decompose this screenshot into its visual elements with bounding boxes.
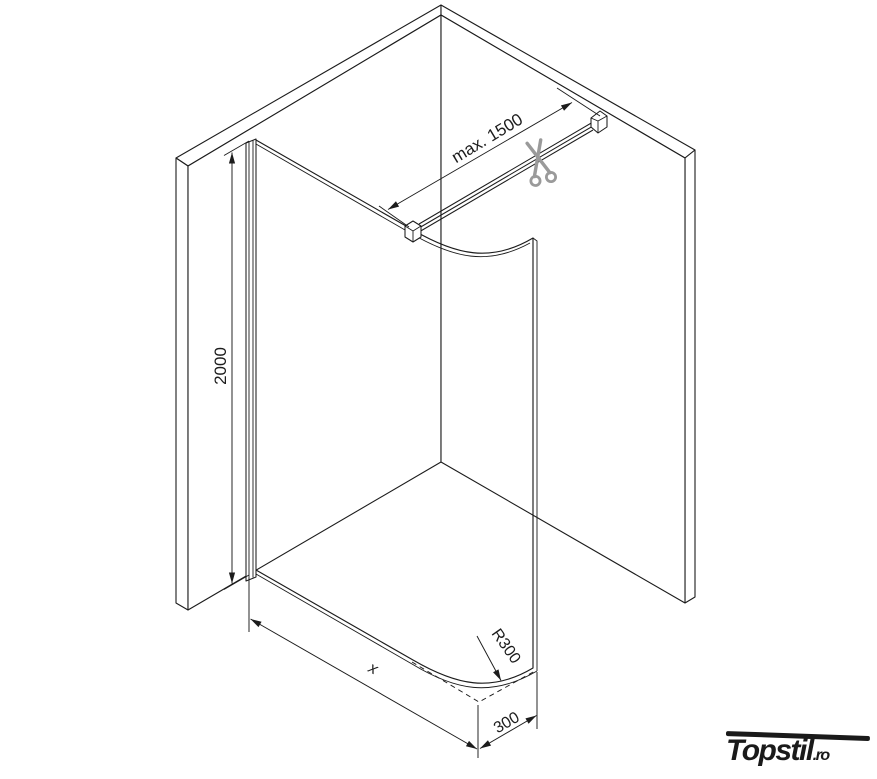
label-panel-width: x (365, 659, 382, 679)
dimension-panel-width: x (249, 578, 478, 758)
technical-drawing-page: max. 1500 2000 x 300 R300 (0, 0, 877, 779)
right-wall-end-face (685, 150, 695, 603)
label-panel-height: 2000 (211, 347, 230, 385)
right-wall-inner-face (441, 15, 685, 603)
logo-domain-suffix: .ro (813, 747, 829, 764)
logo-text: Topstil.ro (726, 736, 870, 766)
projected-corner-dashed (412, 662, 535, 702)
left-wall-end-face (176, 158, 188, 610)
isometric-drawing: max. 1500 2000 x 300 R300 (0, 0, 877, 779)
wall-profile (246, 139, 256, 581)
brand-logo: Topstil.ro (726, 731, 870, 767)
logo-brand-name: Topstil (726, 734, 813, 767)
label-corner-radius: R300 (488, 626, 524, 667)
left-wall-inner-face (188, 15, 441, 610)
dimension-corner-radius: R300 (477, 626, 524, 681)
dim-line-x (251, 619, 478, 749)
